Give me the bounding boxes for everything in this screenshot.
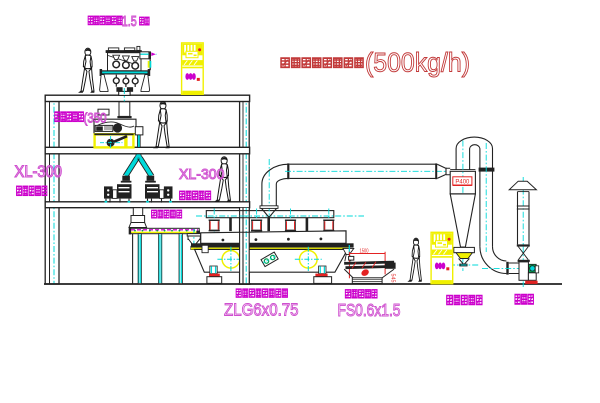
svg-text:(500kg/h): (500kg/h): [365, 48, 470, 78]
svg-text:(350: (350: [84, 110, 107, 126]
svg-text:1.5: 1.5: [122, 14, 137, 30]
svg-text:FS0.6x1.5: FS0.6x1.5: [338, 300, 401, 320]
svg-text:XL-300: XL-300: [15, 162, 63, 181]
svg-text:545: 545: [390, 274, 396, 283]
svg-text:P400: P400: [455, 179, 470, 185]
svg-text:ZLG6x0.75: ZLG6x0.75: [224, 300, 299, 320]
svg-text:XL-300: XL-300: [179, 167, 225, 183]
svg-text:1500: 1500: [360, 249, 369, 255]
